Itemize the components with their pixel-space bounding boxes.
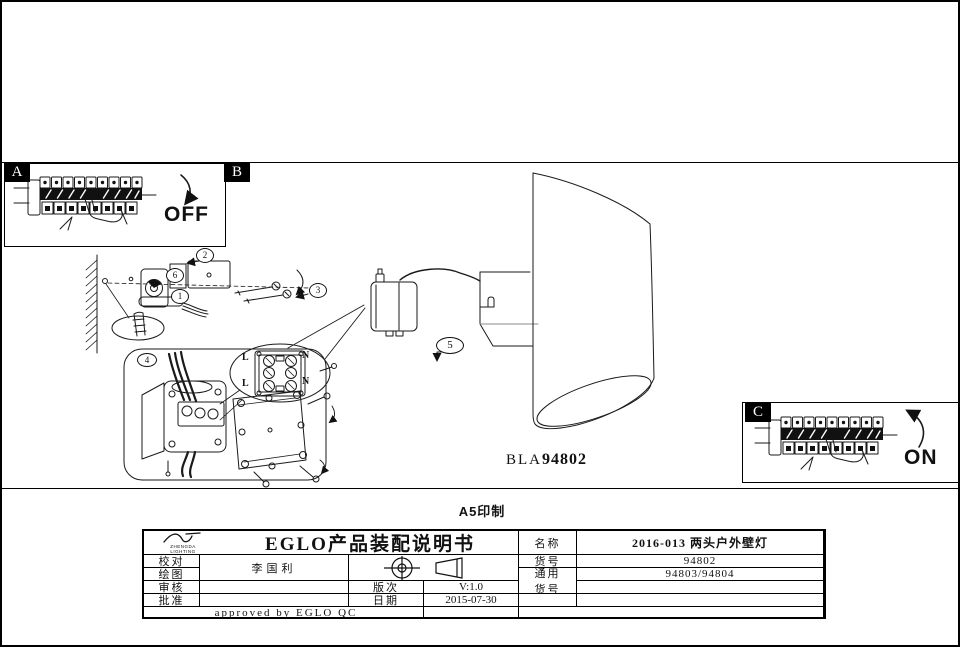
draw-label: 绘图 — [144, 568, 200, 581]
logo-text-bottom: LIGHTING — [170, 549, 195, 554]
projection-symbol-icon — [374, 555, 494, 581]
callout-6: 6 — [166, 268, 184, 283]
detail-panel-outline — [124, 349, 326, 480]
common-label-line1: 通用 — [535, 568, 561, 581]
panel-c-box — [742, 402, 960, 483]
power-on-text: ON — [904, 446, 938, 470]
callout-4: 4 — [137, 353, 157, 367]
item-number-label: 货号 — [519, 555, 577, 568]
date-value: 2015-07-30 — [424, 594, 519, 607]
terminal-label-l-top: L — [242, 352, 249, 363]
panel-b-label: B — [224, 163, 250, 182]
terminal-label-l-bottom: L — [242, 378, 249, 389]
model-prefix: BLA — [506, 452, 542, 468]
power-off-text: OFF — [164, 203, 209, 227]
common-item-label: 通用 货号 — [519, 568, 577, 594]
approved-note: approved by EGLO QC — [144, 607, 424, 619]
approve-label: 批准 — [144, 594, 200, 607]
panel-a-label: A — [4, 163, 30, 182]
name-label: 名称 — [519, 531, 577, 555]
empty-cell — [519, 594, 577, 607]
model-text: BLA94802 — [506, 451, 587, 469]
panel-c-label: C — [745, 403, 771, 422]
manufacturer-logo: ZHENGDA LIGHTING — [144, 531, 222, 554]
drafter-name: 李国利 — [200, 555, 349, 581]
projection-symbol-cell — [349, 555, 519, 581]
product-name-value: 2016-013 两头户外壁灯 — [577, 531, 824, 555]
lamp-body — [532, 173, 657, 437]
version-label: 版次 — [349, 581, 424, 594]
callout-3: 3 — [309, 283, 327, 298]
item-number-value: 94802 — [577, 555, 824, 568]
empty-cell — [577, 594, 824, 607]
empty-cell — [577, 581, 824, 594]
common-item-value: 94803/94804 — [577, 568, 824, 581]
logo-mark-icon — [160, 531, 206, 544]
review-label: 审核 — [144, 581, 200, 594]
review-value-empty — [200, 581, 349, 594]
date-label: 日期 — [349, 594, 424, 607]
terminal-label-n-top: N — [302, 350, 309, 361]
title-block-header: ZHENGDA LIGHTING EGLO产品装配说明书 — [144, 531, 519, 555]
callout-1: 1 — [171, 289, 189, 304]
version-value: V:1.0 — [424, 581, 519, 594]
empty-cell — [519, 607, 824, 619]
instruction-sheet: A B C OFF ON 1 2 3 4 5 6 L L N N BLA9480… — [0, 0, 960, 647]
callout-2: 2 — [196, 248, 214, 263]
model-number: 94802 — [542, 451, 587, 468]
title-block: ZHENGDA LIGHTING EGLO产品装配说明书 名称 2016-013… — [142, 529, 826, 619]
approve-value-empty — [200, 594, 349, 607]
check-label: 校对 — [144, 555, 200, 568]
callout-5: 5 — [436, 337, 464, 354]
document-title: EGLO产品装配说明书 — [222, 531, 518, 555]
print-note: A5印制 — [402, 501, 562, 520]
common-label-line2: 货号 — [535, 581, 561, 595]
terminal-label-n-bottom: N — [302, 376, 309, 387]
empty-cell — [424, 607, 519, 619]
product-name-text: 2016-013 两头户外壁灯 — [632, 534, 768, 551]
